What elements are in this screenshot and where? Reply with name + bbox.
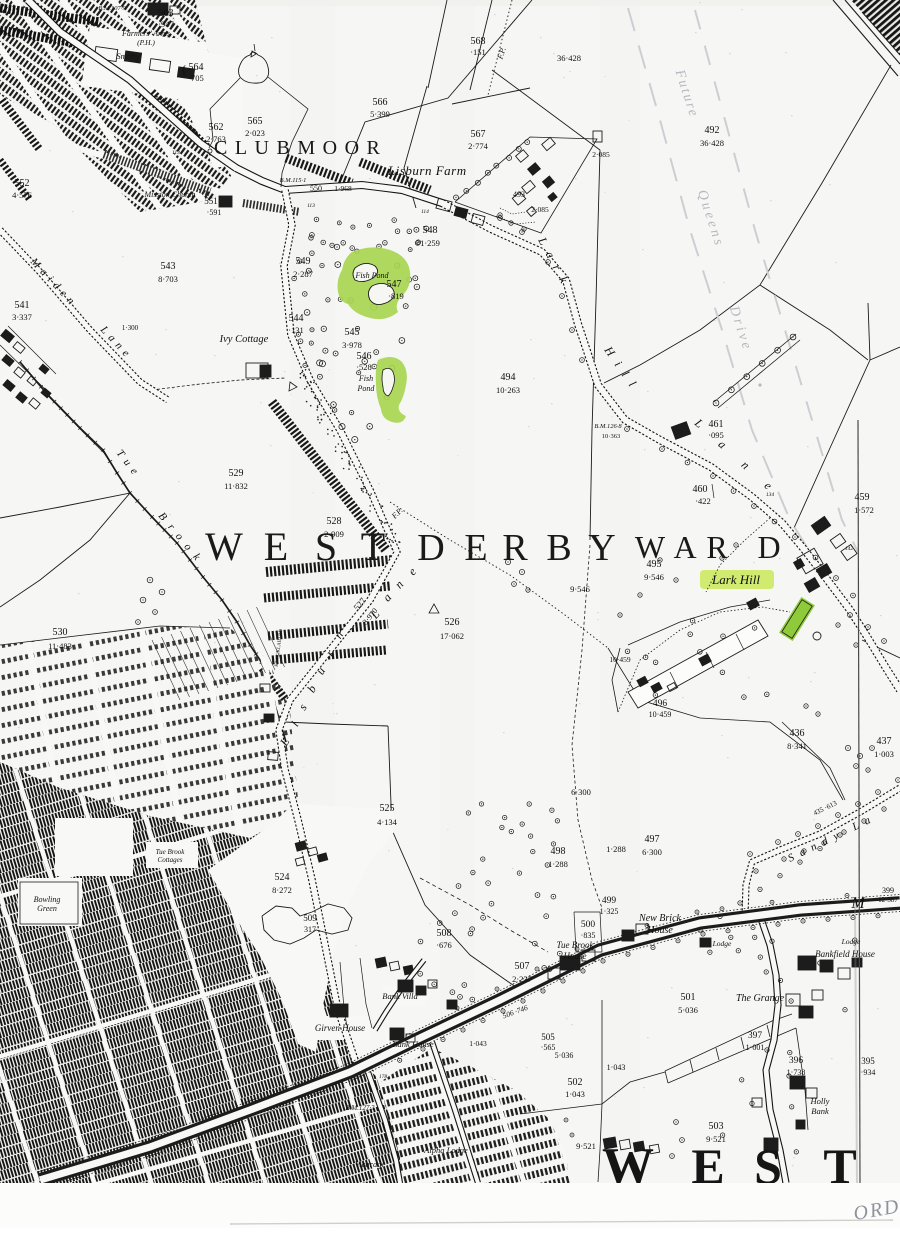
svg-text:9·546: 9·546 — [570, 584, 590, 594]
svg-text:503: 503 — [709, 1121, 724, 1132]
svg-text:8·272: 8·272 — [272, 885, 292, 895]
svg-text:1·043: 1·043 — [565, 1089, 585, 1099]
svg-text:1·288: 1·288 — [548, 859, 568, 869]
svg-text:495: 495 — [647, 559, 662, 570]
svg-text:1·001: 1·001 — [746, 1043, 765, 1052]
svg-text:Holly: Holly — [810, 1096, 830, 1106]
svg-text:2·085: 2·085 — [592, 150, 610, 159]
svg-text:House: House — [646, 925, 673, 936]
svg-text:5·399: 5·399 — [370, 109, 390, 119]
svg-text:3·978: 3·978 — [342, 340, 362, 350]
svg-text:17·062: 17·062 — [440, 631, 464, 641]
svg-text:A: A — [673, 529, 696, 565]
svg-text:396: 396 — [789, 1056, 804, 1066]
svg-text:T: T — [361, 524, 385, 569]
svg-text:568: 568 — [471, 36, 486, 47]
svg-text:436: 436 — [790, 728, 805, 739]
svg-text:498: 498 — [551, 846, 566, 857]
svg-text:D: D — [757, 529, 780, 565]
svg-text:6·300: 6·300 — [642, 847, 662, 857]
svg-text:500: 500 — [581, 920, 596, 930]
svg-text:Girven House: Girven House — [315, 1023, 365, 1033]
svg-text:House: House — [563, 951, 587, 961]
svg-text:525: 525 — [380, 803, 395, 814]
svg-text:1·968: 1·968 — [334, 184, 352, 193]
svg-text:CLUBMOOR: CLUBMOOR — [214, 137, 387, 159]
svg-text:{: { — [181, 62, 187, 77]
svg-text:·591: ·591 — [207, 208, 222, 217]
svg-text:1·003: 1·003 — [874, 749, 894, 759]
svg-text:395: 395 — [861, 1056, 875, 1066]
svg-text:502: 502 — [568, 1077, 583, 1088]
svg-text:Farmers’ Arms: Farmers’ Arms — [121, 29, 170, 38]
svg-text:544: 544 — [289, 313, 304, 324]
svg-text:8·703: 8·703 — [158, 274, 178, 284]
svg-text:B: B — [546, 527, 571, 569]
svg-text:Bank: Bank — [811, 1106, 829, 1116]
svg-text:12·587: 12·587 — [878, 896, 898, 904]
svg-text:·705: ·705 — [188, 73, 204, 83]
svg-text:9·546: 9·546 — [644, 572, 664, 582]
svg-text:546: 546 — [357, 351, 372, 362]
svg-text:507: 507 — [515, 961, 530, 972]
svg-text:5·036: 5·036 — [678, 1005, 698, 1015]
svg-text:2·237: 2·237 — [512, 974, 532, 984]
svg-text:B.M.115·1: B.M.115·1 — [280, 177, 307, 184]
svg-text:496: 496 — [653, 699, 668, 709]
svg-text:10·263: 10·263 — [496, 385, 520, 395]
svg-text:114: 114 — [421, 208, 429, 215]
svg-text:497: 497 — [645, 834, 660, 845]
svg-text:1·325: 1·325 — [600, 907, 619, 916]
svg-text:B.M.126·8: B.M.126·8 — [594, 423, 622, 430]
svg-text:36·428: 36·428 — [557, 53, 581, 63]
svg-text:399: 399 — [882, 886, 894, 895]
svg-text:499: 499 — [602, 896, 617, 906]
svg-text:2·085: 2·085 — [531, 205, 549, 214]
svg-text:Green: Green — [37, 904, 57, 913]
svg-text:S: S — [315, 524, 337, 569]
svg-text:Lodge: Lodge — [841, 937, 861, 946]
svg-text:1·572: 1·572 — [854, 505, 874, 515]
svg-text:3·337: 3·337 — [12, 312, 32, 322]
svg-text:Ivy Cottage: Ivy Cottage — [219, 334, 269, 345]
svg-text:397: 397 — [748, 1031, 763, 1041]
svg-text:505: 505 — [541, 1032, 555, 1042]
svg-text:·676: ·676 — [436, 940, 452, 950]
svg-text:Y: Y — [588, 527, 615, 569]
svg-text:·934: ·934 — [861, 1068, 876, 1077]
svg-text:Bank House: Bank House — [392, 1039, 434, 1049]
svg-text:Bowling: Bowling — [34, 895, 61, 904]
svg-text:113: 113 — [172, 150, 180, 156]
svg-text:11·832: 11·832 — [224, 481, 248, 491]
svg-text:10·459: 10·459 — [649, 710, 672, 719]
svg-text:Fish: Fish — [358, 374, 373, 383]
svg-text:Lodge: Lodge — [712, 939, 732, 948]
svg-text:11·483: 11·483 — [48, 641, 72, 651]
svg-text:493: 493 — [513, 190, 525, 199]
svg-text:Cottages: Cottages — [158, 856, 183, 864]
svg-text:567: 567 — [471, 129, 486, 140]
svg-text:·131: ·131 — [288, 325, 304, 335]
svg-text:529: 529 — [229, 468, 244, 479]
svg-text:437: 437 — [877, 736, 892, 747]
svg-text:Lark Hill: Lark Hill — [711, 572, 760, 587]
svg-text:460: 460 — [693, 484, 708, 495]
svg-text:509: 509 — [303, 913, 317, 923]
svg-text:R: R — [502, 527, 528, 569]
svg-text:Smithy: Smithy — [116, 51, 139, 61]
svg-text:541: 541 — [15, 300, 30, 311]
svg-text:10·459: 10·459 — [609, 655, 630, 664]
svg-text:Tue Brook: Tue Brook — [557, 940, 595, 950]
svg-text:·819: ·819 — [388, 291, 404, 301]
svg-text:543: 543 — [161, 261, 176, 272]
svg-text:Bankfield House: Bankfield House — [815, 949, 875, 959]
svg-text:1·043: 1·043 — [469, 1039, 487, 1048]
svg-text:142: 142 — [845, 545, 854, 552]
svg-text:(P.H.): (P.H.) — [137, 38, 155, 47]
svg-text:Pond: Pond — [357, 384, 376, 393]
svg-text:526: 526 — [445, 617, 460, 628]
svg-text:E: E — [264, 524, 288, 569]
svg-text:Alpha Lodge: Alpha Lodge — [423, 1145, 468, 1155]
svg-text:Vicarage: Vicarage — [355, 1159, 386, 1169]
svg-text:Lisburn Farm: Lisburn Farm — [387, 163, 467, 178]
svg-text:·835: ·835 — [581, 931, 596, 940]
svg-text:565: 565 — [248, 116, 263, 127]
svg-text:562: 562 — [209, 122, 224, 133]
svg-text:548: 548 — [423, 225, 438, 236]
svg-text:B.M.107·9: B.M.107·9 — [98, 5, 126, 12]
svg-text:Tue Brook: Tue Brook — [156, 848, 186, 856]
svg-text:459: 459 — [855, 492, 870, 503]
svg-text:10·363: 10·363 — [602, 433, 620, 440]
svg-text:113: 113 — [307, 203, 315, 209]
svg-text:564: 564 — [189, 62, 204, 73]
svg-text:2·287: 2·287 — [293, 269, 313, 279]
svg-text:5·036: 5·036 — [555, 1051, 574, 1060]
svg-text:B.M.127·3: B.M.127·3 — [345, 1104, 375, 1112]
svg-text:550: 550 — [310, 184, 322, 193]
svg-text:D: D — [417, 527, 444, 569]
svg-text:545: 545 — [345, 327, 360, 338]
svg-text:501: 501 — [681, 992, 696, 1003]
svg-text:566: 566 — [373, 97, 388, 108]
svg-text:·151: ·151 — [470, 47, 486, 57]
svg-text:492: 492 — [705, 125, 720, 136]
svg-text:·947: ·947 — [158, 19, 174, 29]
svg-text:549: 549 — [296, 256, 311, 267]
svg-text:36·428: 36·428 — [700, 138, 724, 148]
svg-text:1·300: 1·300 — [122, 324, 139, 332]
svg-text:134: 134 — [766, 491, 775, 498]
svg-text:563: 563 — [159, 8, 174, 19]
svg-text:317: 317 — [304, 925, 316, 934]
svg-text:508: 508 — [437, 928, 452, 939]
svg-text:E: E — [464, 527, 487, 569]
svg-text:R: R — [706, 529, 728, 565]
svg-text:W: W — [205, 524, 243, 569]
svg-text:494: 494 — [501, 372, 516, 383]
svg-text:The Grange: The Grange — [736, 993, 785, 1004]
svg-text:524: 524 — [275, 872, 290, 883]
svg-text:551: 551 — [204, 196, 218, 206]
svg-text:Fish Pond: Fish Pond — [354, 271, 389, 280]
svg-text:9·521: 9·521 — [576, 1141, 596, 1151]
svg-text:4·134: 4·134 — [377, 817, 398, 827]
svg-text:6·300: 6·300 — [571, 787, 591, 797]
svg-text:4·576: 4·576 — [12, 190, 32, 200]
svg-text:Bank Villa: Bank Villa — [382, 991, 418, 1001]
svg-text:New Brick: New Brick — [638, 913, 681, 924]
svg-text:Mission Church: Mission Church — [143, 190, 195, 199]
svg-text:178: 178 — [379, 1074, 388, 1080]
svg-text:8·341: 8·341 — [787, 741, 807, 751]
svg-text:1·738: 1·738 — [787, 1068, 806, 1077]
svg-text:552: 552 — [15, 178, 30, 189]
svg-text:530: 530 — [53, 627, 68, 638]
svg-text:·565: ·565 — [541, 1043, 556, 1052]
svg-text:·422: ·422 — [695, 496, 711, 506]
svg-text:2·774: 2·774 — [468, 141, 489, 151]
svg-text:1·259: 1·259 — [420, 238, 440, 248]
svg-text:1·043: 1·043 — [607, 1063, 626, 1072]
svg-text:1·288: 1·288 — [606, 844, 626, 854]
svg-text:547: 547 — [387, 279, 402, 290]
svg-text:M: M — [850, 895, 866, 912]
svg-text:·528: ·528 — [356, 362, 372, 372]
